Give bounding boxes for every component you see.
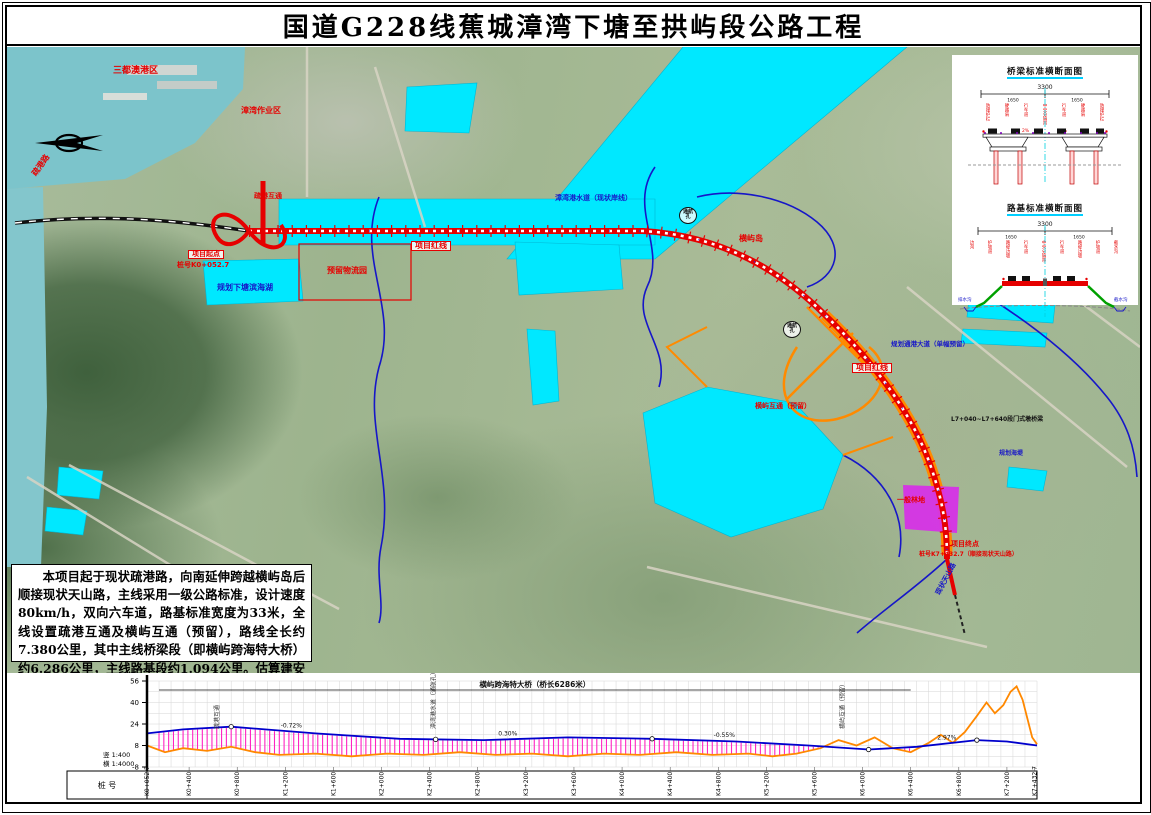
grade-label: -0.55% — [714, 732, 736, 739]
stake-label: K3+600 — [571, 771, 578, 795]
stake-label: K2+400 — [427, 771, 434, 795]
sheet-outer-border: 国道G228线蕉城漳湾下塘至拱屿段公路工程 — [2, 2, 1151, 813]
elevation-tick-label: 24 — [130, 720, 139, 728]
section-column-label: 行车道 — [1024, 102, 1029, 118]
stake-label: K0+400 — [186, 771, 193, 795]
project-description-box: 本项目起于现状疏港路，向南延伸跨越横屿岛后顺接现状天山路，主线采用一级公路标准，… — [11, 564, 312, 662]
stake-strip — [67, 771, 1037, 799]
route-map: 三都澳港区漳湾作业区疏港路疏港互通项目起点桩号K0+052.7规划下塘滨海湖预留… — [7, 47, 1140, 673]
stake-label: K3+200 — [523, 771, 530, 795]
project-description-text: 本项目起于现状疏港路，向南延伸跨越横屿岛后顺接现状天山路，主线采用一级公路标准，… — [18, 568, 305, 673]
grade-label: -0.72% — [281, 722, 303, 729]
profile-annotation: 漳湾港水道（通航孔） — [430, 673, 438, 729]
grade-change-marker — [650, 736, 654, 740]
section-column-label: 防撞护栏 — [1100, 102, 1105, 123]
sea-area — [7, 47, 245, 567]
svg-text:1650: 1650 — [1071, 97, 1083, 103]
roadbed-section-drawing: 3300 1650 1650 边沟护坡道路堤边坡行车道中央分隔带行车道路堤边坡护… — [956, 217, 1134, 325]
grade-change-marker — [866, 747, 870, 751]
roadbed-section-figure: 路基标准横断面图 3300 1650 1650 边沟护坡道路堤边坡行车道中央分隔… — [954, 196, 1136, 329]
stake-label: K2+800 — [475, 771, 482, 795]
svg-text:1650: 1650 — [1007, 97, 1019, 103]
elevation-tick-label: 56 — [130, 677, 139, 685]
planned-parcel — [903, 485, 959, 533]
stake-label: K5+200 — [763, 771, 770, 795]
profile-annotation: 横屿互通（预留） — [839, 680, 847, 728]
section-column-label: 护坡道 — [1096, 239, 1101, 255]
stake-label: K4+400 — [667, 771, 674, 795]
profile-chart-svg: -0.72%0.30%-0.55%2.97%5640248-8竖 1:400横 … — [7, 673, 1140, 802]
section-column-label: 行车道 — [1062, 102, 1067, 118]
section-column-label: 硬路肩 — [1005, 103, 1010, 118]
grade-label: 2.97% — [937, 734, 956, 741]
section-column-label: 硬路肩 — [1081, 103, 1086, 118]
stake-label: K0+800 — [234, 771, 241, 795]
elevation-tick-label: 40 — [130, 699, 139, 707]
svg-text:2%: 2% — [1022, 128, 1030, 134]
section-column-label: 路堤边坡 — [1078, 239, 1083, 260]
section-column-label: 边沟 — [970, 239, 975, 251]
stake-row-header: 桩 号 — [98, 780, 117, 790]
stake-label: K0+052.7 — [144, 765, 151, 795]
stake-label: K1+200 — [282, 771, 289, 795]
grade-change-marker — [229, 724, 233, 728]
stake-label: K7+432.7 — [1032, 765, 1039, 795]
section-column-label: 中央分隔带 — [1042, 239, 1047, 264]
section-column-label: 行车道 — [1060, 239, 1065, 255]
longitudinal-profile: -0.72%0.30%-0.55%2.97%5640248-8竖 1:400横 … — [7, 673, 1140, 802]
stake-label: K5+600 — [812, 771, 819, 795]
bridge-hatch — [159, 727, 909, 756]
title-bar: 国道G228线蕉城漳湾下塘至拱屿段公路工程 — [7, 7, 1140, 46]
section-column-label: 截水沟 — [1114, 239, 1119, 255]
elevation-tick-label: 8 — [135, 742, 139, 750]
svg-text:截水沟: 截水沟 — [1114, 296, 1128, 303]
stake-label: K4+000 — [619, 771, 626, 795]
bridge-annotation: 横屿跨海特大桥（桥长6286米） — [479, 679, 590, 689]
bridge-section-title: 桥梁标准横断面图 — [1007, 65, 1083, 79]
grade-change-marker — [975, 737, 979, 741]
horizontal-scale-label: 横 1:4000 — [103, 759, 134, 768]
drawing-frame: 国道G228线蕉城漳湾下塘至拱屿段公路工程 — [5, 5, 1142, 804]
section-column-label: 行车道 — [1024, 239, 1029, 255]
stake-label: K6+800 — [956, 771, 963, 795]
stake-label: K6+000 — [860, 771, 867, 795]
cross-sections-panel: 桥梁标准横断面图 3300 1650 1650 防撞护栏硬路肩行车道中央分隔带行… — [952, 55, 1138, 305]
section-column-label: 护坡道 — [988, 239, 993, 255]
bridge-section-drawing: 3300 1650 1650 防撞护栏硬路肩行车道中央分隔带行车道硬路肩防撞护栏… — [956, 80, 1134, 192]
page-title: 国道G228线蕉城漳湾下塘至拱屿段公路工程 — [283, 7, 864, 44]
profile-annotation: 疏港互通 — [213, 704, 221, 728]
svg-text:1650: 1650 — [1005, 234, 1017, 240]
section-column-label: 路堤边坡 — [1006, 239, 1011, 260]
stake-label: K4+800 — [715, 771, 722, 795]
bridge-section-figure: 桥梁标准横断面图 3300 1650 1650 防撞护栏硬路肩行车道中央分隔带行… — [954, 59, 1136, 196]
stake-label: K7+200 — [1004, 771, 1011, 795]
vertical-scale-label: 竖 1:400 — [103, 750, 130, 759]
grade-change-marker — [433, 737, 437, 741]
stake-label: K1+600 — [330, 771, 337, 795]
roadbed-section-title: 路基标准横断面图 — [1007, 202, 1083, 216]
svg-text:1650: 1650 — [1073, 234, 1085, 240]
svg-text:排水沟: 排水沟 — [958, 296, 972, 303]
grade-label: 0.30% — [498, 730, 517, 737]
stake-label: K6+400 — [908, 771, 915, 795]
section-column-label: 防撞护栏 — [986, 102, 991, 123]
stake-label: K2+000 — [379, 771, 386, 795]
